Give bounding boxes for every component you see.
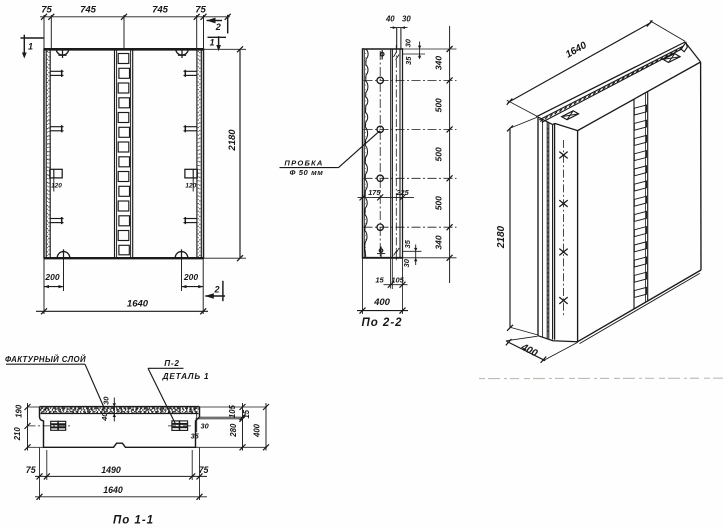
svg-text:75: 75 — [41, 5, 52, 16]
svg-text:200: 200 — [183, 272, 198, 282]
svg-text:35: 35 — [404, 56, 413, 65]
svg-text:15: 15 — [242, 409, 251, 418]
svg-text:2180: 2180 — [227, 129, 238, 152]
svg-text:400: 400 — [253, 423, 262, 438]
svg-text:75: 75 — [199, 465, 209, 475]
svg-text:40: 40 — [385, 15, 395, 24]
svg-text:1640: 1640 — [127, 298, 149, 309]
svg-text:1: 1 — [209, 37, 214, 47]
svg-text:2: 2 — [213, 285, 219, 295]
svg-text:120: 120 — [185, 183, 196, 190]
svg-text:40: 40 — [100, 412, 109, 422]
svg-text:340: 340 — [434, 235, 444, 249]
svg-text:1640: 1640 — [103, 485, 123, 495]
svg-text:340: 340 — [434, 56, 444, 70]
svg-text:1: 1 — [28, 42, 33, 52]
svg-text:105: 105 — [228, 404, 237, 418]
svg-text:ПРОБКА: ПРОБКА — [284, 158, 323, 167]
svg-text:По 1-1: По 1-1 — [113, 515, 154, 527]
svg-text:745: 745 — [80, 5, 97, 16]
svg-text:П-2: П-2 — [164, 359, 180, 368]
svg-text:500: 500 — [434, 147, 444, 161]
svg-text:15: 15 — [375, 275, 384, 284]
svg-text:30: 30 — [404, 38, 413, 47]
svg-text:745: 745 — [152, 5, 169, 16]
svg-text:35: 35 — [191, 431, 200, 440]
svg-text:30: 30 — [201, 421, 209, 430]
svg-text:225: 225 — [396, 188, 410, 197]
svg-text:75: 75 — [26, 465, 36, 475]
svg-text:35: 35 — [403, 239, 412, 248]
svg-text:2: 2 — [215, 22, 221, 32]
svg-text:30: 30 — [402, 258, 411, 267]
svg-text:175: 175 — [368, 188, 381, 197]
svg-text:По 2-2: По 2-2 — [361, 317, 402, 329]
svg-text:400: 400 — [373, 297, 391, 308]
svg-text:Ф 50 мм: Ф 50 мм — [289, 168, 323, 177]
svg-text:105: 105 — [391, 275, 404, 284]
svg-text:2180: 2180 — [496, 225, 507, 249]
svg-text:120: 120 — [51, 183, 62, 190]
svg-text:ФАКТУРНЫЙ СЛОЙ: ФАКТУРНЫЙ СЛОЙ — [5, 355, 86, 364]
svg-text:500: 500 — [434, 98, 444, 112]
svg-text:200: 200 — [44, 272, 59, 282]
svg-text:ДЕТАЛЬ 1: ДЕТАЛЬ 1 — [162, 372, 210, 381]
svg-text:30: 30 — [402, 15, 411, 24]
svg-text:75: 75 — [195, 5, 206, 16]
svg-text:1490: 1490 — [101, 465, 121, 475]
svg-text:280: 280 — [229, 423, 238, 438]
svg-text:210: 210 — [13, 427, 22, 442]
svg-text:190: 190 — [14, 404, 23, 418]
svg-text:500: 500 — [434, 196, 444, 210]
